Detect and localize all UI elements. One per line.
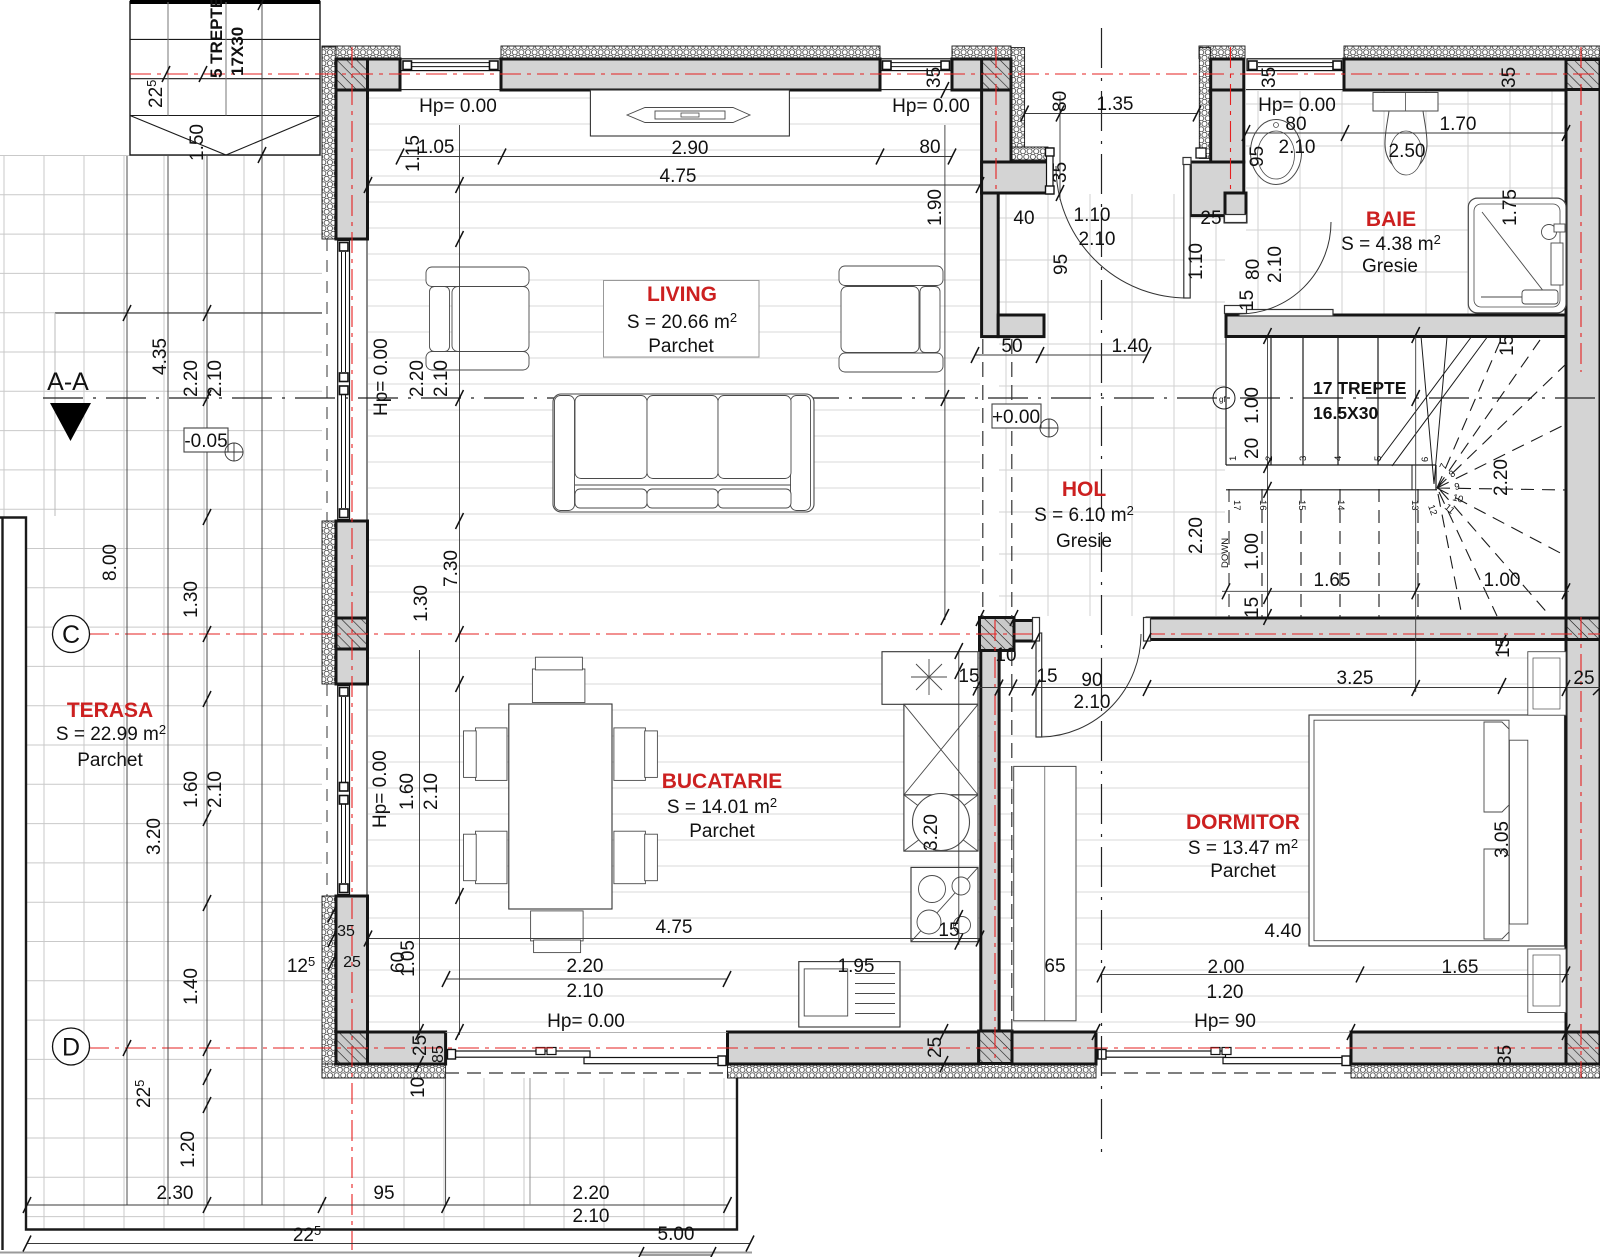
svg-text:1.60: 1.60 — [397, 773, 418, 810]
svg-text:35: 35 — [1050, 162, 1071, 183]
svg-text:HOL: HOL — [1062, 478, 1107, 501]
svg-text:80: 80 — [1285, 114, 1306, 135]
svg-text:65: 65 — [1044, 956, 1065, 977]
svg-text:1.00: 1.00 — [1484, 570, 1521, 591]
svg-text:C: C — [62, 621, 80, 649]
svg-text:5: 5 — [1373, 456, 1384, 461]
svg-text:Gresie: Gresie — [1056, 531, 1112, 552]
svg-text:1.75: 1.75 — [1500, 189, 1521, 226]
svg-text:BUCATARIE: BUCATARIE — [662, 770, 783, 793]
svg-text:2.10: 2.10 — [1074, 692, 1111, 713]
svg-text:35: 35 — [1495, 1045, 1516, 1066]
svg-text:15: 15 — [1493, 637, 1514, 658]
svg-text:1.35: 1.35 — [1097, 94, 1134, 115]
svg-text:1.60: 1.60 — [181, 771, 202, 808]
svg-text:1.40: 1.40 — [1112, 336, 1149, 357]
svg-text:15: 15 — [1497, 335, 1518, 356]
svg-text:BAIE: BAIE — [1366, 208, 1416, 231]
svg-text:3: 3 — [1298, 456, 1309, 461]
svg-text:1.40: 1.40 — [181, 968, 202, 1005]
svg-text:40: 40 — [1013, 208, 1034, 229]
svg-text:2.30: 2.30 — [157, 1183, 194, 1204]
svg-text:15: 15 — [1036, 666, 1057, 687]
svg-text:35: 35 — [1499, 67, 1520, 88]
svg-text:1.70: 1.70 — [1440, 114, 1477, 135]
svg-text:4.40: 4.40 — [1265, 921, 1302, 942]
svg-text:50: 50 — [1001, 336, 1022, 357]
svg-text:2.10: 2.10 — [205, 771, 226, 808]
svg-text:DORMITOR: DORMITOR — [1186, 811, 1300, 834]
svg-text:1.65: 1.65 — [1442, 957, 1479, 978]
svg-text:Parchet: Parchet — [77, 750, 143, 771]
svg-text:25: 25 — [1200, 208, 1221, 229]
svg-text:2.10: 2.10 — [421, 773, 442, 810]
svg-text:Hp= 0.00: Hp= 0.00 — [1258, 95, 1336, 116]
svg-text:4.35: 4.35 — [150, 338, 171, 375]
svg-text:17X30: 17X30 — [228, 27, 247, 76]
svg-text:3.25: 3.25 — [1337, 668, 1374, 689]
svg-text:2.10: 2.10 — [431, 360, 452, 397]
svg-text:14: 14 — [1335, 500, 1346, 511]
svg-text:5 TREPTE: 5 TREPTE — [207, 0, 226, 78]
svg-text:1.15: 1.15 — [403, 135, 424, 172]
svg-text:95: 95 — [1247, 146, 1268, 167]
svg-text:S = 6.10 m2: S = 6.10 m2 — [1034, 503, 1134, 526]
svg-text:2.10: 2.10 — [573, 1206, 610, 1227]
svg-text:2.10: 2.10 — [1279, 137, 1316, 158]
svg-text:DOWN: DOWN — [1220, 538, 1231, 568]
svg-text:S = 4.38 m2: S = 4.38 m2 — [1341, 232, 1441, 255]
svg-text:16.5X30: 16.5X30 — [1313, 403, 1378, 423]
svg-text:10: 10 — [995, 645, 1016, 666]
svg-text:80: 80 — [1243, 259, 1264, 280]
svg-text:gf: gf — [1219, 395, 1226, 404]
svg-text:1.95: 1.95 — [838, 956, 875, 977]
svg-text:5.00: 5.00 — [658, 1224, 695, 1245]
svg-text:25: 25 — [1573, 668, 1594, 689]
svg-text:3.20: 3.20 — [144, 818, 165, 855]
svg-text:20: 20 — [1242, 438, 1263, 459]
svg-text:2.90: 2.90 — [672, 138, 709, 159]
svg-text:16: 16 — [1257, 500, 1268, 511]
svg-text:35: 35 — [924, 67, 945, 88]
svg-text:1.00: 1.00 — [1242, 533, 1263, 570]
svg-text:1.65: 1.65 — [1314, 570, 1351, 591]
svg-text:17 TREPTE: 17 TREPTE — [1313, 378, 1406, 398]
svg-text:Hp= 0.00: Hp= 0.00 — [419, 96, 497, 117]
svg-text:+0.00: +0.00 — [992, 407, 1040, 428]
svg-text:A-A: A-A — [47, 368, 89, 396]
svg-text:15: 15 — [938, 920, 959, 941]
svg-text:1.10: 1.10 — [1074, 205, 1111, 226]
svg-text:Hp= 0.00: Hp= 0.00 — [370, 750, 391, 828]
svg-text:2.50: 2.50 — [1389, 141, 1426, 162]
svg-text:2.20: 2.20 — [1491, 459, 1512, 496]
svg-text:95: 95 — [373, 1183, 394, 1204]
svg-text:15: 15 — [1242, 597, 1263, 618]
svg-text:S = 14.01 m2: S = 14.01 m2 — [667, 795, 777, 818]
svg-text:25: 25 — [925, 1037, 946, 1058]
svg-text:2.10: 2.10 — [205, 360, 226, 397]
svg-text:2.00: 2.00 — [1208, 957, 1245, 978]
svg-text:25: 25 — [410, 1035, 431, 1056]
svg-text:3.05: 3.05 — [1492, 821, 1513, 858]
svg-text:TERASA: TERASA — [67, 699, 153, 722]
svg-text:D: D — [62, 1034, 80, 1062]
svg-text:1.10: 1.10 — [1186, 243, 1207, 280]
svg-text:15: 15 — [1237, 290, 1258, 311]
svg-text:25: 25 — [343, 954, 361, 971]
svg-text:S = 13.47 m2: S = 13.47 m2 — [1188, 836, 1298, 859]
svg-text:1: 1 — [1228, 456, 1239, 461]
svg-text:1.30: 1.30 — [411, 585, 432, 622]
svg-text:Hp= 0.00: Hp= 0.00 — [547, 1011, 625, 1032]
svg-text:2.10: 2.10 — [1079, 229, 1116, 250]
svg-text:7.30: 7.30 — [441, 550, 462, 587]
svg-text:6: 6 — [1420, 457, 1431, 462]
svg-text:10: 10 — [408, 1077, 429, 1098]
svg-text:35: 35 — [337, 923, 355, 940]
svg-text:13: 13 — [1409, 500, 1420, 511]
svg-text:15: 15 — [958, 666, 979, 687]
svg-text:1.90: 1.90 — [925, 189, 946, 226]
svg-text:Hp= 90: Hp= 90 — [1194, 1011, 1256, 1032]
svg-text:3.20: 3.20 — [921, 814, 942, 851]
svg-text:80: 80 — [919, 137, 940, 158]
svg-text:2.10: 2.10 — [567, 981, 604, 1002]
svg-text:4.75: 4.75 — [660, 166, 697, 187]
svg-text:17: 17 — [1231, 500, 1242, 511]
svg-text:85: 85 — [430, 1045, 447, 1063]
svg-text:35: 35 — [1259, 67, 1280, 88]
svg-text:Parchet: Parchet — [1210, 861, 1276, 882]
svg-text:S = 20.66 m2: S = 20.66 m2 — [627, 310, 737, 333]
svg-text:4: 4 — [1333, 456, 1344, 461]
svg-text:1.00: 1.00 — [1242, 387, 1263, 424]
svg-text:1.30: 1.30 — [181, 581, 202, 618]
svg-text:S = 22.99 m2: S = 22.99 m2 — [56, 722, 166, 745]
svg-text:15: 15 — [1296, 500, 1307, 511]
svg-text:Hp= 0.00: Hp= 0.00 — [892, 96, 970, 117]
svg-text:-0.05: -0.05 — [184, 431, 227, 452]
svg-text:2.20: 2.20 — [573, 1183, 610, 1204]
svg-text:1.05: 1.05 — [398, 940, 419, 977]
svg-text:1.50: 1.50 — [187, 124, 208, 161]
svg-text:2.10: 2.10 — [1265, 246, 1286, 283]
svg-text:2.20: 2.20 — [1186, 517, 1207, 554]
svg-text:1.20: 1.20 — [1207, 982, 1244, 1003]
svg-text:2.20: 2.20 — [181, 360, 202, 397]
svg-text:2.20: 2.20 — [567, 956, 604, 977]
svg-text:2.20: 2.20 — [407, 360, 428, 397]
svg-text:Parchet: Parchet — [648, 336, 714, 357]
svg-text:4.75: 4.75 — [656, 917, 693, 938]
svg-text:90: 90 — [1081, 670, 1102, 691]
svg-text:Hp= 0.00: Hp= 0.00 — [371, 338, 392, 416]
svg-text:Gresie: Gresie — [1362, 256, 1418, 277]
svg-text:1.20: 1.20 — [178, 1131, 199, 1168]
svg-text:95: 95 — [1051, 254, 1072, 275]
svg-text:80: 80 — [1050, 91, 1071, 112]
svg-text:LIVING: LIVING — [647, 283, 717, 306]
svg-text:8.00: 8.00 — [100, 544, 121, 581]
svg-text:Parchet: Parchet — [689, 821, 755, 842]
